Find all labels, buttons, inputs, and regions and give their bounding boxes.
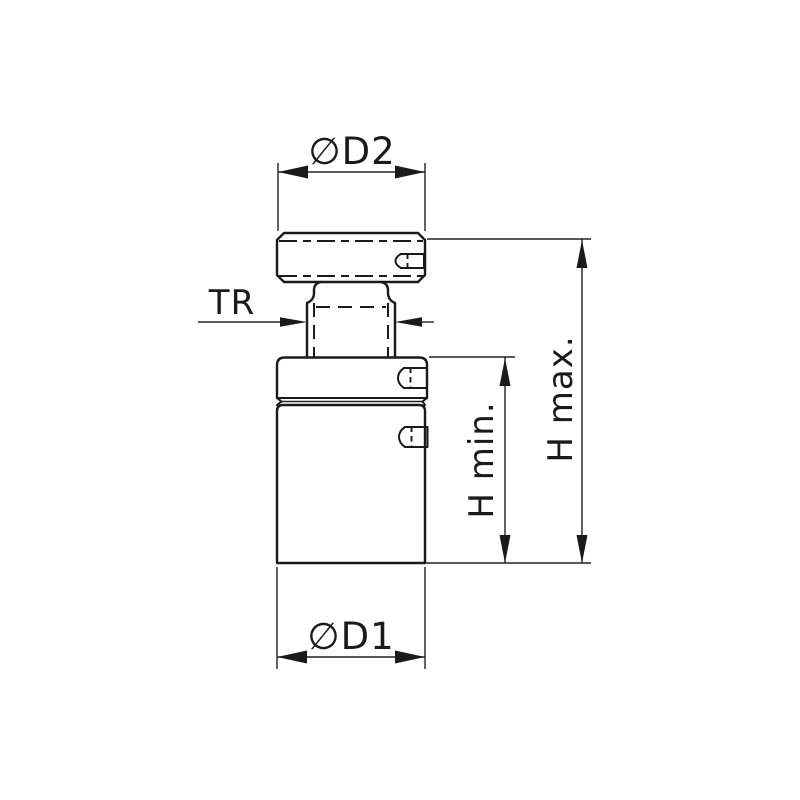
technical-drawing: ∅D2 TR H min. H max. ∅D1	[0, 0, 800, 800]
drawing-canvas: ∅D2 TR H min. H max. ∅D1	[0, 0, 800, 800]
h-min-label: H min.	[462, 401, 502, 518]
h-min-arrow-top	[500, 358, 511, 386]
tr-arrow-right	[395, 317, 422, 327]
body-set-screw-point	[399, 427, 405, 447]
disc-set-screw	[396, 254, 425, 269]
dimension-d2: ∅D2	[278, 130, 425, 231]
tr-arrow-left	[280, 317, 307, 327]
d1-arrow-left	[277, 651, 307, 664]
threaded-spindle	[307, 282, 395, 357]
dimension-h-max: H max.	[427, 239, 591, 563]
dimension-h-min: H min.	[429, 357, 515, 563]
d2-label: ∅D2	[308, 130, 395, 173]
disc-set-screw-point	[396, 254, 402, 268]
spindle-left-profile	[307, 282, 321, 357]
d2-arrow-left	[278, 166, 308, 179]
groove-right-notch	[423, 398, 428, 405]
collar-set-screw	[398, 368, 427, 389]
h-max-arrow-top	[577, 240, 588, 268]
dimension-tr: TR	[198, 283, 434, 327]
d1-arrow-right	[395, 651, 425, 664]
collar-set-screw-point	[398, 368, 404, 388]
tr-label: TR	[208, 283, 255, 323]
collar-set-screw-body	[404, 368, 427, 388]
collar-outline	[277, 358, 427, 399]
body-set-screw	[399, 427, 428, 448]
disc-set-screw-body	[401, 254, 424, 268]
spindle-right-profile	[381, 282, 395, 357]
d2-arrow-right	[395, 166, 425, 179]
dimension-d1: ∅D1	[277, 567, 425, 669]
h-max-arrow-bottom	[577, 535, 588, 563]
groove-left-notch	[277, 398, 282, 405]
top-disc	[277, 233, 425, 282]
h-max-label: H max.	[541, 335, 581, 462]
adjusting-collar	[277, 358, 427, 399]
h-min-arrow-bottom	[500, 535, 511, 563]
d1-label: ∅D1	[307, 615, 394, 658]
